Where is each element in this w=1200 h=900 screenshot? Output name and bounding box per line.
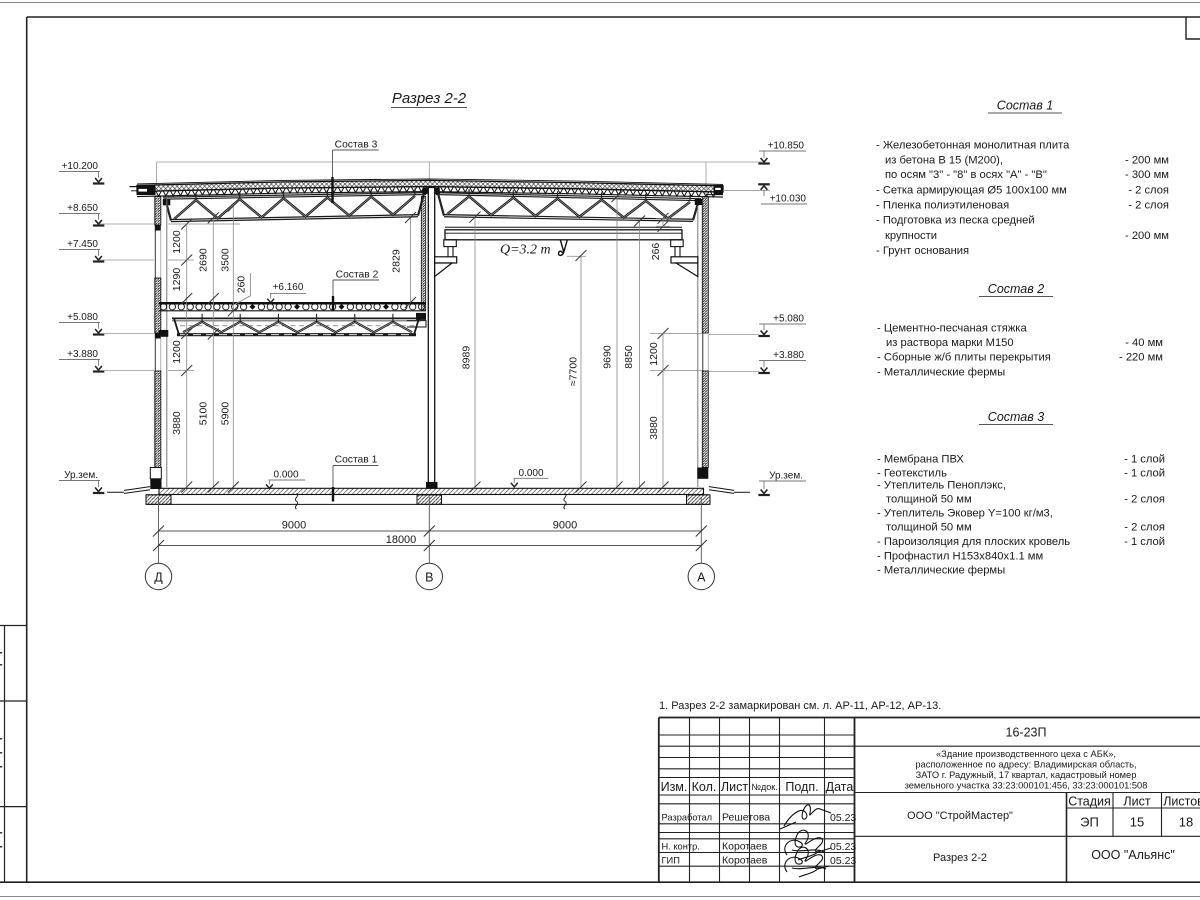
svg-text:Коротаев: Коротаев bbox=[722, 855, 768, 867]
svg-text:Стадия: Стадия bbox=[1068, 795, 1111, 809]
svg-text:+10.200: +10.200 bbox=[62, 161, 99, 172]
svg-text:+10.850: +10.850 bbox=[768, 141, 805, 152]
svg-text:+5.080: +5.080 bbox=[67, 312, 98, 323]
svg-text:- Профнастил Н153х840х1.1 мм: - Профнастил Н153х840х1.1 мм bbox=[877, 550, 1043, 562]
svg-text:0.000: 0.000 bbox=[273, 470, 298, 481]
svg-text:15: 15 bbox=[1130, 815, 1144, 830]
svg-text:18: 18 bbox=[1179, 815, 1193, 830]
svg-text:из бетона В 15 (М200),: из бетона В 15 (М200), bbox=[885, 154, 1003, 166]
svg-text:- Пленка полиэтиленовая: - Пленка полиэтиленовая bbox=[876, 200, 1009, 212]
svg-text:- Железобетонная монолитная п: - Железобетонная монолитная плита bbox=[876, 140, 1070, 152]
svg-text:1200: 1200 bbox=[648, 342, 660, 366]
svg-text:Коротаев: Коротаев bbox=[722, 841, 768, 853]
svg-text:Решетова: Решетова bbox=[722, 812, 770, 824]
svg-text:Изм.: Изм. bbox=[661, 780, 688, 794]
svg-text:ООО "СтройМастер": ООО "СтройМастер" bbox=[907, 810, 1013, 822]
svg-text:266: 266 bbox=[650, 243, 662, 261]
svg-text:Лист: Лист bbox=[1123, 795, 1150, 809]
svg-text:толщиной 50 мм: толщиной 50 мм bbox=[886, 522, 972, 534]
svg-text:+7.450: +7.450 bbox=[67, 239, 98, 250]
svg-text:ООО "Альянс": ООО "Альянс" bbox=[1091, 848, 1175, 862]
svg-text:0.000: 0.000 bbox=[518, 468, 543, 479]
svg-text:- Сборные ж/б плиты перекрытия: - Сборные ж/б плиты перекрытия bbox=[877, 352, 1051, 364]
svg-text:8850: 8850 bbox=[623, 345, 635, 369]
svg-text:≈7700: ≈7700 bbox=[568, 357, 580, 386]
svg-text:Состав 3: Состав 3 bbox=[988, 410, 1044, 424]
svg-text:- 40 мм: - 40 мм bbox=[1125, 337, 1163, 349]
svg-text:Разрез 2-2: Разрез 2-2 bbox=[392, 90, 467, 107]
svg-text:- 2 слоя: - 2 слоя bbox=[1128, 185, 1169, 197]
svg-text:3880: 3880 bbox=[648, 416, 660, 440]
svg-text:+5.080: +5.080 bbox=[773, 314, 804, 325]
svg-text:+6.160: +6.160 bbox=[273, 282, 304, 293]
svg-text:9000: 9000 bbox=[553, 520, 577, 532]
svg-text:Состав 2: Состав 2 bbox=[336, 270, 379, 281]
svg-text:Ур.зем.: Ур.зем. bbox=[769, 471, 803, 482]
svg-text:- Сетка армирующая Ø5 100х100: - Сетка армирующая Ø5 100х100 мм bbox=[876, 185, 1067, 197]
svg-text:05.23: 05.23 bbox=[830, 855, 856, 867]
svg-text:по осям "3" - "8" в осях "А" -: по осям "3" - "8" в осях "А" - "В" bbox=[885, 169, 1047, 181]
svg-text:3880: 3880 bbox=[171, 411, 183, 435]
svg-text:18000: 18000 bbox=[386, 534, 417, 546]
svg-text:3500: 3500 bbox=[219, 248, 231, 272]
svg-text:Разработал: Разработал bbox=[662, 813, 713, 823]
svg-text:- 1 слой: - 1 слой bbox=[1124, 468, 1165, 480]
svg-text:расположенное по адресу: Влади: расположенное по адресу: Владимирская об… bbox=[915, 760, 1136, 770]
svg-text:1200: 1200 bbox=[171, 230, 183, 254]
svg-text:1290: 1290 bbox=[171, 268, 183, 292]
svg-text:5100: 5100 bbox=[198, 402, 210, 426]
svg-text:- 200 мм: - 200 мм bbox=[1125, 154, 1169, 166]
svg-text:2690: 2690 bbox=[198, 248, 210, 272]
svg-text:Состав 1: Состав 1 bbox=[997, 99, 1053, 113]
svg-text:8989: 8989 bbox=[460, 346, 472, 370]
svg-text:толщиной 50 мм: толщиной 50 мм bbox=[886, 494, 972, 506]
svg-text:- 200 мм: - 200 мм bbox=[1125, 230, 1169, 242]
svg-text:ЭП: ЭП bbox=[1080, 815, 1099, 830]
svg-text:- Утеплитель Пеноплэкс,: - Утеплитель Пеноплэкс, bbox=[877, 479, 1006, 491]
svg-text:крупности: крупности bbox=[885, 230, 937, 242]
svg-text:Н. контр.: Н. контр. bbox=[662, 842, 700, 852]
svg-text:Разрез 2-2: Разрез 2-2 bbox=[933, 852, 987, 864]
svg-text:9000: 9000 bbox=[282, 520, 306, 532]
svg-text:Состав 1: Состав 1 bbox=[335, 455, 378, 466]
svg-text:Q=3.2 m: Q=3.2 m bbox=[500, 243, 551, 258]
svg-text:№док.: №док. bbox=[751, 782, 777, 792]
svg-text:+10.030: +10.030 bbox=[770, 194, 807, 205]
svg-text:- 300 мм: - 300 мм bbox=[1125, 169, 1169, 181]
svg-text:1200: 1200 bbox=[171, 340, 183, 364]
svg-text:- Металлические фермы: - Металлические фермы bbox=[877, 564, 1005, 576]
svg-text:+3.880: +3.880 bbox=[773, 350, 804, 361]
svg-text:2829: 2829 bbox=[391, 249, 403, 273]
svg-text:А: А bbox=[697, 571, 706, 585]
svg-text:- 220 мм: - 220 мм bbox=[1119, 352, 1163, 364]
svg-text:Д: Д bbox=[154, 571, 163, 585]
svg-text:Кол.: Кол. bbox=[692, 780, 717, 794]
svg-text:05.23: 05.23 bbox=[830, 812, 856, 824]
svg-text:из раствора марки М150: из раствора марки М150 bbox=[886, 337, 1014, 349]
svg-text:16-23П: 16-23П bbox=[1006, 726, 1047, 740]
svg-text:- Геотекстиль: - Геотекстиль bbox=[877, 468, 947, 480]
svg-text:- Подготовка из песка средней: - Подготовка из песка средней bbox=[876, 215, 1035, 227]
svg-text:- Металлические фермы: - Металлические фермы bbox=[877, 367, 1005, 379]
svg-text:- 1 слой: - 1 слой bbox=[1124, 453, 1165, 465]
svg-text:- Пароизоляция для плоских кро: - Пароизоляция для плоских кровель bbox=[877, 536, 1070, 548]
svg-text:Листов: Листов bbox=[1163, 795, 1200, 809]
svg-text:Состав 3: Состав 3 bbox=[335, 140, 378, 151]
svg-text:Лист: Лист bbox=[721, 780, 748, 794]
svg-text:- 2 слоя: - 2 слоя bbox=[1124, 522, 1165, 534]
svg-text:- Цементно-песчаная стяжка: - Цементно-песчаная стяжка bbox=[877, 323, 1027, 335]
svg-text:Подп.: Подп. bbox=[785, 780, 818, 794]
svg-text:05.23: 05.23 bbox=[830, 841, 856, 853]
svg-text:- 2 слоя: - 2 слоя bbox=[1128, 200, 1169, 212]
svg-text:- Утеплитель Эковер Y=100 кг/м: - Утеплитель Эковер Y=100 кг/м3, bbox=[877, 508, 1053, 520]
svg-text:Ур.зем.: Ур.зем. bbox=[64, 470, 98, 481]
svg-text:Состав 2: Состав 2 bbox=[988, 282, 1044, 296]
svg-text:9690: 9690 bbox=[602, 345, 614, 369]
svg-text:земельного участка 33:23:00010: земельного участка 33:23:000101:456, 33:… bbox=[905, 781, 1148, 791]
svg-text:- 2 слоя: - 2 слоя bbox=[1124, 494, 1165, 506]
svg-text:- 1 слой: - 1 слой bbox=[1124, 536, 1165, 548]
svg-text:Дата: Дата bbox=[826, 780, 854, 794]
svg-text:ЗАТО г. Радужный, 17 квартал,: ЗАТО г. Радужный, 17 квартал, кадастровы… bbox=[916, 770, 1137, 780]
svg-text:В: В bbox=[425, 571, 433, 585]
svg-text:+3.880: +3.880 bbox=[67, 349, 98, 360]
svg-text:5900: 5900 bbox=[219, 402, 231, 426]
svg-text:ГИП: ГИП bbox=[662, 856, 680, 866]
svg-text:- Мембрана ПВХ: - Мембрана ПВХ bbox=[877, 453, 964, 465]
svg-text:1. Разрез 2-2 замаркирован см.: 1. Разрез 2-2 замаркирован см. л. АР-11,… bbox=[659, 700, 941, 712]
svg-text:«Здание производственного цеха: «Здание производственного цеха с АБК», bbox=[936, 749, 1116, 759]
svg-text:- Грунт основания: - Грунт основания bbox=[876, 245, 969, 257]
svg-text:260: 260 bbox=[236, 276, 248, 294]
svg-text:+8.650: +8.650 bbox=[67, 203, 98, 214]
